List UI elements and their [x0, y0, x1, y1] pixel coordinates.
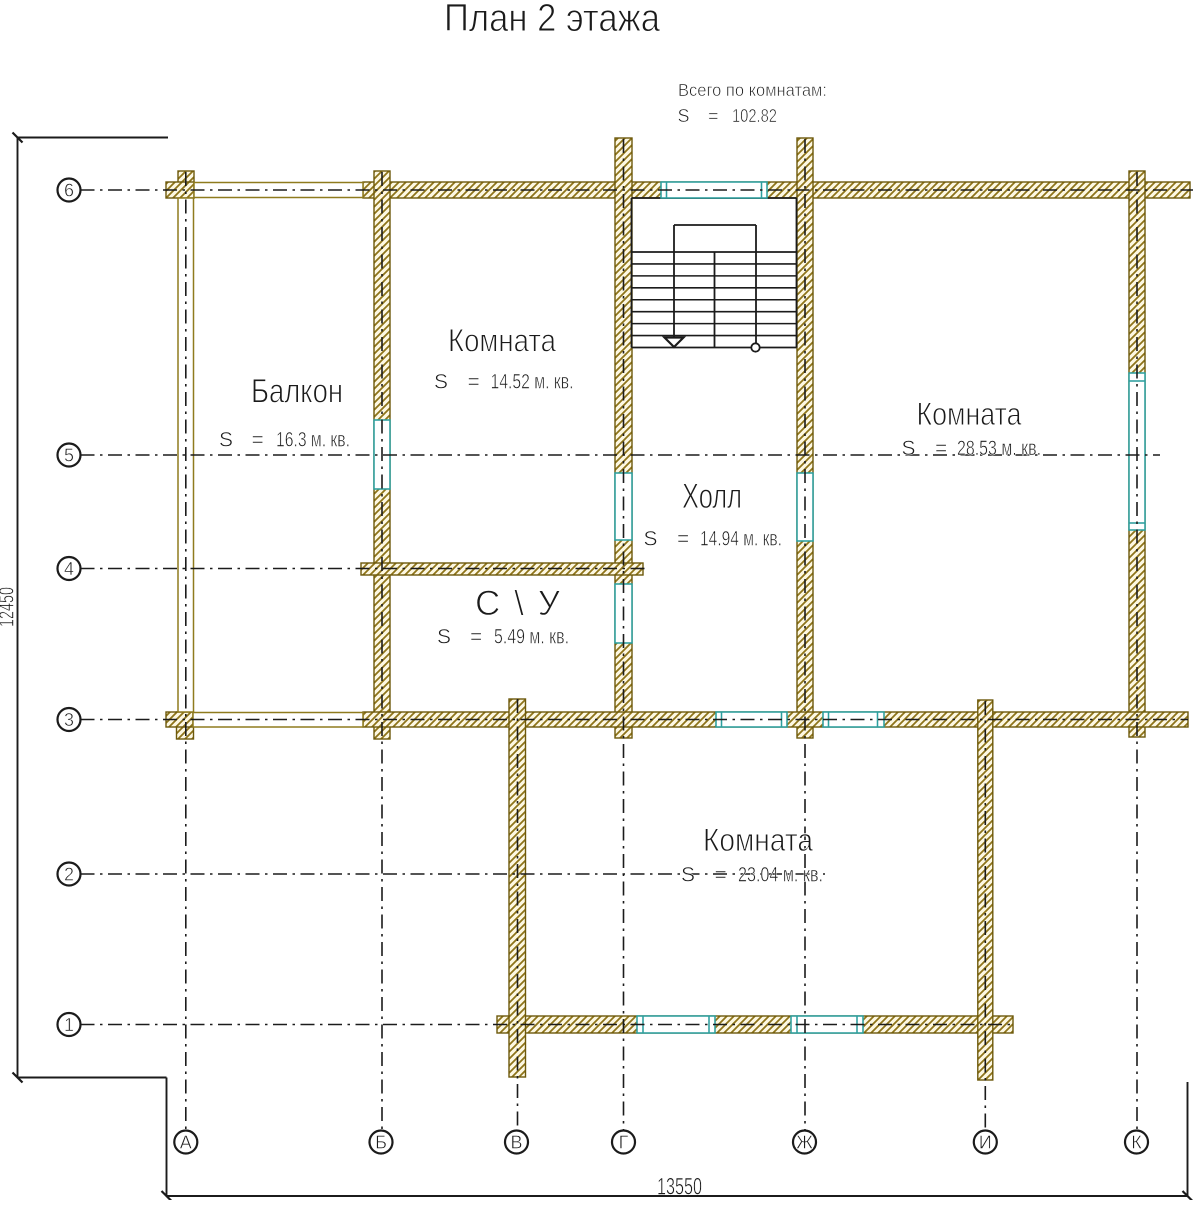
svg-text:S: S	[437, 626, 451, 649]
svg-text:4: 4	[64, 559, 74, 579]
svg-text:3: 3	[64, 710, 74, 730]
svg-text:Б: Б	[375, 1133, 387, 1153]
svg-text:12450: 12450	[0, 587, 19, 627]
svg-text:В: В	[510, 1133, 522, 1153]
svg-text:1: 1	[64, 1015, 74, 1035]
svg-text:Холл: Холл	[682, 477, 742, 516]
svg-text:5.49 м. кв.: 5.49 м. кв.	[494, 626, 569, 649]
svg-text:И: И	[979, 1133, 992, 1153]
svg-text:=: =	[470, 626, 482, 649]
svg-text:102.82: 102.82	[732, 106, 777, 126]
svg-text:23.04 м. кв.: 23.04 м. кв.	[738, 864, 823, 887]
svg-text:5: 5	[64, 446, 74, 466]
svg-text:Комната: Комната	[448, 323, 556, 359]
svg-text:Комната: Комната	[703, 822, 813, 858]
svg-text:=: =	[468, 371, 480, 394]
svg-text:=: =	[252, 429, 264, 452]
svg-text:Балкон: Балкон	[251, 373, 343, 411]
svg-text:S: S	[434, 371, 448, 394]
svg-text:План 2 этажа: План 2 этажа	[444, 0, 660, 40]
svg-text:S: S	[902, 437, 916, 460]
svg-text:6: 6	[64, 181, 74, 201]
svg-text:16.3 м. кв.: 16.3 м. кв.	[276, 429, 350, 452]
svg-text:А: А	[180, 1133, 192, 1153]
svg-text:S: S	[678, 106, 690, 126]
svg-text:С\У: С\У	[475, 584, 561, 623]
svg-text:=: =	[715, 864, 727, 887]
svg-text:Всего по комнатам:: Всего по комнатам:	[678, 80, 827, 100]
svg-text:2: 2	[64, 865, 74, 885]
svg-text:=: =	[935, 437, 947, 460]
svg-text:13550: 13550	[657, 1174, 702, 1201]
svg-text:К: К	[1131, 1133, 1142, 1153]
svg-text:Комната: Комната	[917, 396, 1022, 432]
svg-text:14.52 м. кв.: 14.52 м. кв.	[491, 371, 574, 394]
svg-text:=: =	[708, 106, 719, 126]
svg-text:S: S	[681, 864, 695, 887]
svg-text:=: =	[677, 528, 689, 551]
svg-text:14.94 м. кв.: 14.94 м. кв.	[700, 528, 782, 551]
svg-text:S: S	[644, 528, 658, 551]
svg-text:S: S	[219, 429, 233, 452]
svg-text:Г: Г	[619, 1133, 629, 1153]
svg-text:28.53 м. кв.: 28.53 м. кв.	[957, 437, 1041, 460]
svg-text:Ж: Ж	[796, 1133, 813, 1153]
